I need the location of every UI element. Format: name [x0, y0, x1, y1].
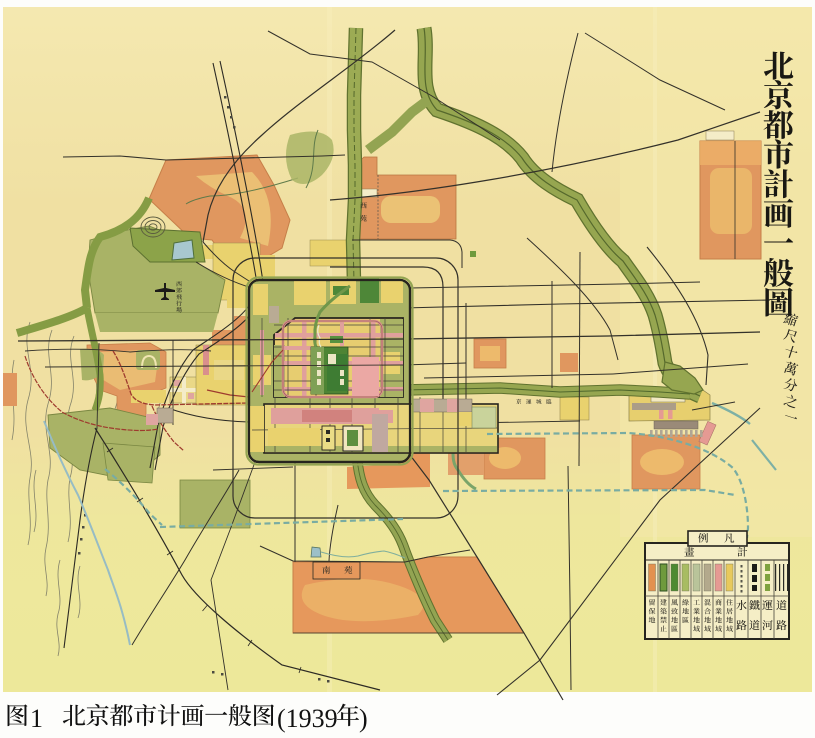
svg-text:1: 1 [30, 704, 43, 733]
svg-text:): ) [359, 704, 368, 733]
svg-text:(1939: (1939 [277, 704, 338, 733]
